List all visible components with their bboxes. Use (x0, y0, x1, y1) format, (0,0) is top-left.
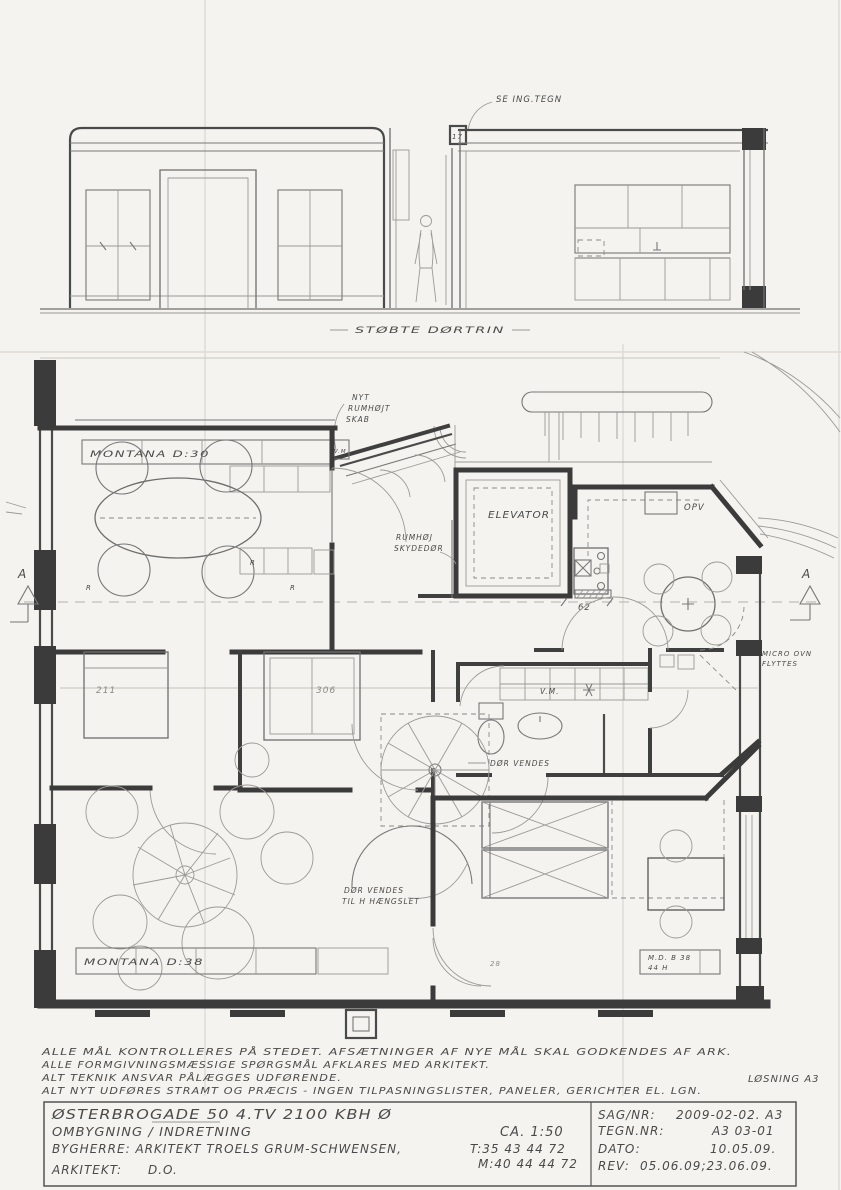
human-figure (415, 216, 437, 303)
section-callout: SE ING.TEGN (496, 95, 562, 105)
notes-block: ALLE MÅL KONTROLLERES PÅ STEDET. AFSÆTNI… (41, 1045, 820, 1097)
wardrobe-elevation-2 (278, 190, 342, 300)
utility-room (650, 650, 758, 775)
round-table (182, 907, 254, 979)
door-reversed2-label-1: DØR VENDES (344, 886, 404, 895)
address: ØSTERBROGADE 50 4.TV 2100 KBH Ø (51, 1108, 392, 1123)
toilet (478, 703, 504, 754)
section-marker-letter: A (17, 567, 27, 581)
door-elevation (160, 170, 256, 308)
montana-top-label: MONTANA D:30 (90, 450, 210, 460)
dining-chair (98, 544, 150, 596)
elevator-shaft: ELEVATOR RUMHØJ SKYDEDØR (394, 470, 570, 598)
dining-chair (202, 546, 254, 598)
washing-machine-label: V.M. (540, 687, 560, 696)
scale: CA. 1:50 (500, 1125, 564, 1140)
architect-value: D.O. (148, 1163, 178, 1177)
corridor-doors (536, 597, 744, 650)
dim-28: 28 (490, 960, 501, 968)
desk (648, 830, 724, 938)
kitchen-chair (644, 564, 674, 594)
spiral-stair: DØR VENDES TIL H HÆNGSLET (342, 714, 489, 906)
dim-62: 62 (578, 603, 591, 613)
door-head-dim: 17 (452, 133, 463, 141)
new-cabinet-label-1: NYT (352, 393, 370, 402)
architect-label: ARKITEKT: (51, 1163, 122, 1177)
md-cabinet: M.D. B 38 44 H (640, 950, 720, 974)
drawing-number: A3 03-01 (711, 1124, 775, 1138)
project-title: OMBYGNING / INDRETNING (52, 1125, 252, 1139)
md-label-1: M.D. B 38 (648, 954, 691, 962)
radiator-mark: R (250, 559, 256, 567)
shower-corner (460, 666, 504, 706)
left-exterior-wall (34, 360, 56, 1008)
micro-label-2: FLYTTES (762, 660, 798, 668)
new-cabinet-label-3: SKAB (346, 415, 370, 424)
micro-label-1: MICRO OVN (762, 650, 812, 658)
section-elevation: 17 SE ING.TEGN (40, 95, 800, 336)
case-number: 2009-02-02. A3 (676, 1108, 783, 1122)
md-label-2: 44 H (648, 964, 668, 972)
right-exterior-wall (736, 556, 764, 1006)
bottom-exterior-wall (42, 1004, 766, 1038)
rev-label: REV: (598, 1159, 630, 1173)
client: BYGHERRE: ARKITEKT TROELS GRUM-SCHWENSEN… (52, 1142, 402, 1156)
sliding-door-label-1: RUMHØJ (396, 533, 433, 542)
star-mark (583, 684, 595, 696)
elevator-label: ELEVATOR (488, 510, 550, 521)
drawing-label: TEGN.NR: (598, 1124, 664, 1138)
chimney (346, 1010, 376, 1038)
floor-plan: V.M. NYT RUMHØJT SKAB MONTANA D:30 (6, 352, 840, 1038)
entry-hall: V.M. NYT RUMHØJT SKAB (332, 393, 712, 497)
architectural-drawing: 17 SE ING.TEGN (0, 0, 841, 1190)
dishwasher-label: OPV (684, 503, 705, 513)
stove-sink-unit (574, 548, 609, 594)
mobile: M:40 44 44 72 (478, 1157, 578, 1171)
door-reversed-label: DØR VENDES (490, 759, 550, 768)
lounge-chair (118, 946, 162, 990)
date-value: 10.05.09. (710, 1142, 776, 1156)
lounge-chair (86, 786, 138, 838)
section-marker-right: A (790, 567, 820, 620)
bathroom: V.M. DØR VENDES (458, 664, 650, 833)
note-line-1: ALLE MÅL KONTROLLERES PÅ STEDET. AFSÆTNI… (41, 1045, 732, 1058)
bedroom-left: 211 (52, 652, 240, 790)
dishwasher (645, 492, 677, 514)
door-reversed2-label-2: TIL H HÆNGSLET (342, 897, 420, 906)
radiator-mark: R (290, 584, 296, 592)
living-room: MONTANA D:38 (76, 785, 388, 990)
rev-value: 05.06.09;23.06.09. (640, 1159, 773, 1173)
beds (482, 802, 608, 898)
case-label: SAG/NR: (598, 1108, 656, 1122)
note-line-2: ALLE FORMGIVNINGSMÆSSIGE SPØRGSMÅL AFKLA… (41, 1058, 490, 1071)
vanity-counter: V.M. (500, 668, 648, 700)
date-label: DATO: (598, 1142, 641, 1156)
lounge-chair (261, 832, 313, 884)
new-cabinet-label-2: RUMHØJT (348, 404, 391, 413)
title-block: ØSTERBROGADE 50 4.TV 2100 KBH Ø OMBYGNIN… (44, 1102, 796, 1186)
sliding-door-label-2: SKYDEDØR (394, 544, 444, 553)
section-marker-letter: A (801, 567, 811, 581)
dim-306: 306 (316, 686, 336, 696)
note-line-4: ALT NYT UDFØRES STRAMT OG PRÆCIS - INGEN… (41, 1085, 702, 1097)
section-caption: STØBTE DØRTRIN (355, 325, 505, 336)
stairwell-outside (434, 352, 840, 558)
kitchen-chair (701, 615, 731, 645)
phone: T:35 43 44 72 (470, 1142, 566, 1156)
lounge-chair (220, 785, 274, 839)
section-marker-left: A (6, 502, 38, 622)
kitchen-chair (643, 616, 673, 646)
kitchen-elevation (575, 185, 730, 300)
dim-211: 211 (96, 686, 116, 696)
plant (133, 823, 237, 927)
solution-label: LØSNING A3 (748, 1073, 820, 1085)
montana-bottom-label: MONTANA D:38 (84, 958, 204, 968)
bedroom-bottom-right: M.D. B 38 44 H 28 (433, 746, 758, 1004)
kitchen-chair (702, 562, 732, 592)
note-line-3: ALT TEKNIK ANSVAR PÅLÆGGES UDFØRENDE. (41, 1071, 342, 1084)
bedroom-middle: 306 (235, 652, 433, 798)
radiator-mark: R (86, 584, 92, 592)
lounge-chair (93, 895, 147, 949)
scanned-drawing-sheet: 17 SE ING.TEGN (0, 0, 841, 1190)
washbasin (518, 713, 562, 739)
wardrobe-elevation (86, 190, 150, 300)
